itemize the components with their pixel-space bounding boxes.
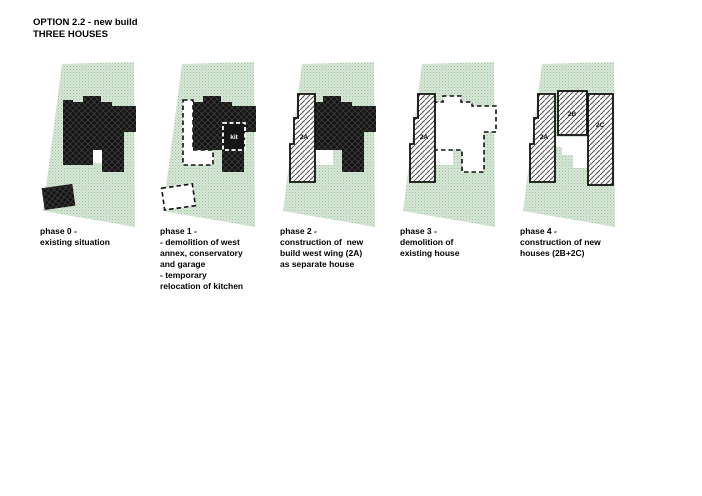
caption-phase-3: phase 3 - demolition of existing house	[400, 226, 522, 259]
label-2b: 2B	[568, 111, 577, 118]
site-plan-phase-0	[40, 60, 165, 232]
kitchen-label: kit	[230, 134, 238, 141]
label-2c: 2C	[596, 122, 605, 129]
label-2a: 2A	[540, 134, 549, 141]
new-house-2c	[588, 94, 613, 185]
label-2a: 2A	[300, 134, 309, 141]
page-title-line1: OPTION 2.2 - new build	[33, 17, 138, 28]
garage	[42, 184, 76, 210]
caption-phase-0: phase 0 - existing situation	[40, 226, 162, 248]
caption-phase-2: phase 2 - construction of new build west…	[280, 226, 402, 270]
site-plan-phase-1: kit	[160, 60, 285, 232]
page-title-line2: THREE HOUSES	[33, 29, 108, 40]
label-2a: 2A	[420, 134, 429, 141]
site-plan-phase-4: 2A 2B 2C	[520, 60, 645, 232]
caption-phase-1: phase 1 - - demolition of west annex, co…	[160, 226, 282, 292]
demolished-garage-outline	[162, 184, 196, 210]
site-plan-phase-3: 2A	[400, 60, 525, 232]
site-plan-phase-2: 2A	[280, 60, 405, 232]
page-title: OPTION 2.2 - new build THREE HOUSES	[33, 17, 138, 40]
conservatory	[93, 150, 102, 163]
caption-phase-4: phase 4 - construction of new houses (2B…	[520, 226, 642, 259]
